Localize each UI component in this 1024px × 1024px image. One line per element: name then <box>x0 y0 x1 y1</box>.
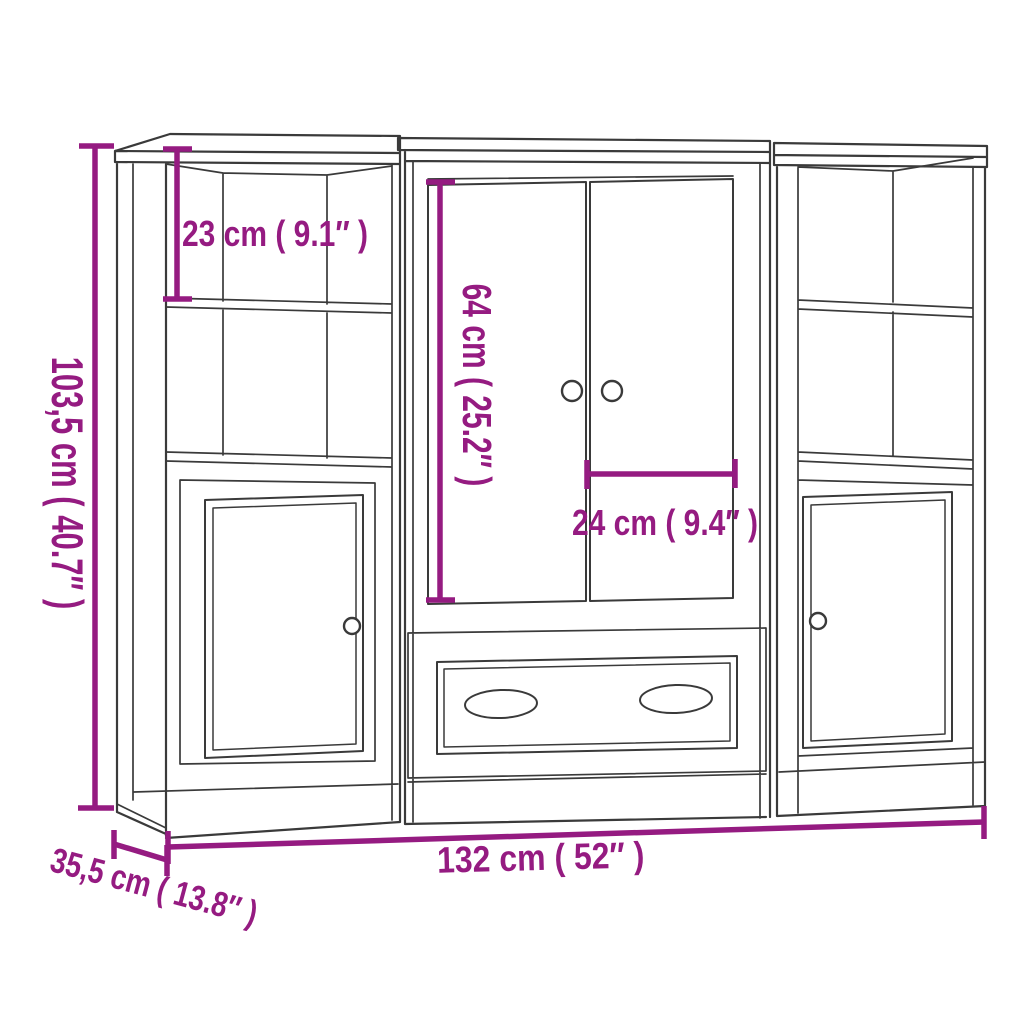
top-compartment-dimension-label: 23 cm ( 9.1″ ) <box>182 214 368 254</box>
door-width-dimension-label: 24 cm ( 9.4″ ) <box>572 503 758 543</box>
furniture-dimension-diagram: 103,5 cm ( 40.7″ ) 23 cm ( 9.1″ ) 64 cm … <box>0 0 1024 1024</box>
middle-right-door-knob <box>602 381 622 401</box>
door-height-dimension-label: 64 cm ( 25.2″ ) <box>454 284 499 487</box>
width-dimension-label: 132 cm ( 52″ ) <box>437 835 645 881</box>
height-dimension: 103,5 cm ( 40.7″ ) <box>42 146 114 808</box>
top-compartment-dimension: 23 cm ( 9.1″ ) <box>163 149 368 299</box>
left-module-door <box>205 495 363 758</box>
left-door-knob <box>344 618 360 634</box>
width-dimension: 132 cm ( 52″ ) <box>168 806 984 881</box>
height-dimension-label: 103,5 cm ( 40.7″ ) <box>42 357 92 610</box>
right-cabinet-module <box>774 143 987 816</box>
middle-left-door-knob <box>562 381 582 401</box>
right-door-knob <box>810 613 826 629</box>
diagram-canvas: 103,5 cm ( 40.7″ ) 23 cm ( 9.1″ ) 64 cm … <box>0 0 1024 1024</box>
